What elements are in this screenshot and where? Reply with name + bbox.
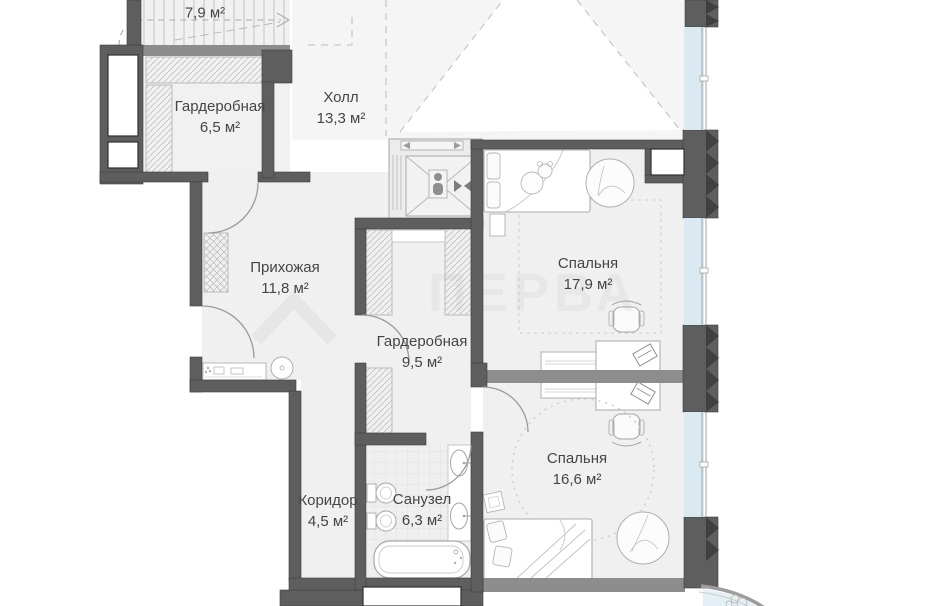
room-area: 4,5 м² bbox=[298, 511, 357, 532]
bedroom-partition-wall bbox=[483, 370, 685, 383]
elevator bbox=[389, 139, 482, 219]
room-name: Санузел bbox=[393, 489, 451, 510]
nightstand bbox=[490, 214, 505, 236]
room-area: 7,9 м² bbox=[185, 3, 225, 24]
room-name: Гардеробная bbox=[377, 331, 468, 352]
room-name: Спальня bbox=[547, 448, 607, 469]
bathtub bbox=[374, 541, 470, 578]
balcony-curve bbox=[699, 586, 784, 606]
bed-2 bbox=[484, 519, 592, 579]
bean-bag-1 bbox=[586, 159, 634, 207]
picture-frame bbox=[483, 491, 504, 512]
room-name: Спальня bbox=[558, 253, 618, 274]
entry-rug bbox=[204, 233, 228, 292]
window-niche bbox=[651, 149, 684, 175]
room-area: 17,9 м² bbox=[558, 274, 618, 295]
room-label-wardrobe-2: Гардеробная 9,5 м² bbox=[377, 331, 468, 373]
room-area: 13,3 м² bbox=[317, 108, 366, 129]
bean-bag-2 bbox=[617, 512, 669, 564]
round-pouf bbox=[271, 357, 293, 379]
room-label-corridor: Коридор 4,5 м² bbox=[298, 490, 357, 532]
room-area: 9,5 м² bbox=[377, 352, 468, 373]
room-label-hall: Холл 13,3 м² bbox=[317, 87, 366, 129]
room-area: 6,3 м² bbox=[393, 510, 451, 531]
room-label-bedroom-1: Спальня 17,9 м² bbox=[558, 253, 618, 295]
room-name: Гардеробная bbox=[175, 96, 266, 117]
room-name: Коридор bbox=[298, 490, 357, 511]
toilet bbox=[367, 483, 396, 503]
room-name: Прихожая bbox=[250, 257, 320, 278]
person-icon bbox=[434, 173, 442, 181]
console-table bbox=[203, 363, 266, 380]
room-label-bedroom-2: Спальня 16,6 м² bbox=[547, 448, 607, 490]
room-area: 11,8 м² bbox=[250, 278, 320, 299]
floor-plan: ПЕРВА 7,9 м² Гардеробная 6,5 м² Холл 13,… bbox=[0, 0, 926, 606]
room-area: 6,5 м² bbox=[175, 117, 266, 138]
room-name: Холл bbox=[317, 87, 366, 108]
room-area: 16,6 м² bbox=[547, 469, 607, 490]
room-label-stairs: 7,9 м² bbox=[185, 3, 225, 24]
elevator-door bbox=[401, 141, 463, 150]
room-label-bathroom: Санузел 6,3 м² bbox=[393, 489, 451, 531]
room-label-entry: Прихожая 11,8 м² bbox=[250, 257, 320, 299]
bidet bbox=[367, 511, 396, 531]
room-label-wardrobe-1: Гардеробная 6,5 м² bbox=[175, 96, 266, 138]
